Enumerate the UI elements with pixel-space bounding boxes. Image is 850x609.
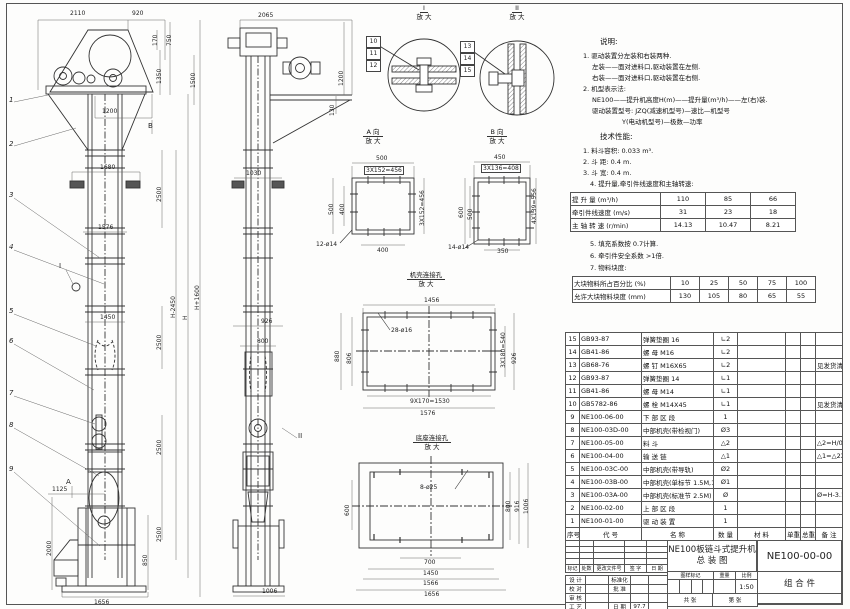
detail-i-sub: 放 大: [416, 13, 431, 21]
bom-row: 2NE100-02-00上 部 区 段1: [566, 502, 843, 515]
dim-label: 3X180=540: [500, 332, 507, 368]
note-line: NE100——提升机高度H(m)——提升量(m³/h)——左(右)装.: [592, 96, 768, 104]
revision-table: 标记处数更改文件号签 字日 期: [565, 540, 668, 573]
bom-row: 6NE100-04-00输 送 链△1△1=△2X4: [566, 450, 843, 463]
bom-row: 7NE100-05-00料 斗△2△2=H/0.2+5.75: [566, 437, 843, 450]
base-detail-title: 底座连接孔 放 大: [404, 434, 460, 451]
drawing-number: NE100-00-00: [767, 551, 833, 562]
part-callout: 5: [9, 307, 13, 315]
detail-i-title: I 放 大: [408, 4, 440, 21]
dim-label: 1125: [52, 486, 67, 493]
part-callout: 1: [9, 96, 13, 104]
bom-row: 5NE100-03C-00中部机壳(带导轨)Ø2: [566, 463, 843, 476]
dim-label: 500: [376, 155, 387, 162]
dim-label: 1200: [102, 108, 117, 115]
spec-item: 6. 牵引件安全系数 >1倍.: [590, 252, 664, 260]
part-callout: 9: [9, 465, 13, 473]
dim-label: H: [182, 315, 189, 320]
dim-label: 1006: [523, 499, 530, 514]
view-marker-a: A: [66, 478, 71, 486]
detail-ii-sub: 放 大: [509, 13, 524, 21]
dim-label: H+1600: [194, 285, 201, 310]
dim-label: 8-ø25: [420, 484, 437, 491]
view-a-label: A 向: [363, 128, 382, 137]
scale-value: 1:50: [736, 580, 758, 594]
dim-label: 806: [346, 353, 353, 364]
dim-label: 500: [467, 209, 474, 220]
dim-label: 1656: [424, 591, 439, 598]
drawing-title-line2: 总 装 图: [697, 556, 728, 566]
dim-label: 1450: [423, 570, 438, 577]
dim-label: 920: [132, 10, 143, 17]
detail-ii-title: II 放 大: [501, 4, 533, 21]
dim-label: 600: [458, 207, 465, 218]
dim-label: 2500: [156, 527, 163, 542]
dim-label: 1450: [100, 314, 115, 321]
dim-label: 130: [329, 105, 336, 116]
dim-label: 28-ø16: [391, 327, 412, 334]
dim-label: 400: [377, 247, 388, 254]
bom-row: 13GB68-76螺 钉 M16X65∟2见发货清单: [566, 359, 843, 372]
dim-label: 1456: [424, 297, 439, 304]
performance-table: 提 升 量 (m³/h)1108566 牵引件线速度 (m/s)312318 主…: [570, 192, 796, 232]
part-callout: 7: [9, 389, 13, 397]
front-elevation-view: [46, 30, 153, 592]
base-detail-label: 底座连接孔: [413, 434, 452, 443]
dim-label: 400: [339, 204, 346, 215]
detail-marker-ii: II: [298, 432, 302, 440]
bom-row: 11GB41-86螺 母 M14∟1: [566, 385, 843, 398]
part-callout: 4: [9, 243, 13, 251]
view-a-section: [340, 176, 416, 243]
scale-value-table: 1:50: [667, 579, 758, 594]
dim-label: 3X152=456: [419, 190, 426, 226]
view-marker-b: B: [148, 122, 153, 130]
dim-label: 3X152=456: [364, 166, 404, 175]
note-line: 右装——面对进料口,驱动装置在右侧.: [592, 74, 700, 82]
dim-label: 3X136=408: [481, 164, 521, 173]
dim-label: 1576: [98, 224, 113, 231]
signature-table: 设 计标准化 校 对批 准 审 核 工 艺日 期97.7: [565, 575, 668, 609]
detail-ii-label: II: [512, 4, 522, 13]
bom-row: 14GB41-86螺 母 M16∟2: [566, 346, 843, 359]
casing-holes-detail: [356, 306, 502, 397]
dim-label: 500: [328, 204, 335, 215]
bom-row: 10GB5782-86螺 栓 M14X45∟1见发货清单: [566, 398, 843, 411]
spec-item: 4. 提升量,牵引件线速度和主轴转速:: [590, 180, 694, 188]
dim-label: 2065: [258, 12, 273, 19]
casing-detail-title: 机壳连接孔 放 大: [398, 271, 454, 288]
dim-label: 450: [494, 154, 505, 161]
note-line: 2. 机型表示法:: [583, 85, 626, 93]
view-a-title: A 向 放 大: [356, 128, 390, 145]
bom-row: 8NE100-03D-00中部机壳(带检视门)Ø3: [566, 424, 843, 437]
casing-detail-sub: 放 大: [418, 280, 433, 288]
dim-label: 2500: [156, 440, 163, 455]
view-b-section: [465, 176, 534, 248]
bom-row: 1NE100-01-00驱 动 装 置1: [566, 515, 843, 528]
dim-label: 1576: [420, 410, 435, 417]
dim-label: 350: [497, 248, 508, 255]
dim-label: 9X170=1530: [410, 398, 450, 405]
spec-item: 5. 填充系数按 0.7计算.: [590, 240, 658, 248]
casing-detail-label: 机壳连接孔: [407, 271, 446, 280]
dim-label: 926: [511, 353, 518, 364]
dim-label: 2000: [46, 541, 53, 556]
part-callout: 2: [9, 140, 13, 148]
base-detail-sub: 放 大: [424, 443, 439, 451]
dim-label: 1656: [94, 599, 109, 606]
drawing-sheet: 2110 920 170 750 1350 1500 1200 1680 157…: [0, 0, 850, 609]
part-callout: 8: [9, 421, 13, 429]
part-callout-box: 13: [460, 41, 475, 53]
dim-label: 1030: [246, 170, 261, 177]
bom-row: 9NE100-06-00下 部 区 段1: [566, 411, 843, 424]
part-callout: 3: [9, 191, 13, 199]
dim-label: 916: [514, 501, 521, 512]
bom-table: 15GB93-87弹簧垫圈 16∟2 14GB41-86螺 母 M16∟2 13…: [565, 332, 843, 541]
lump-size-table: 大块物料所占百分比 (%)10255075100 允许大块物料块度 (mm)13…: [572, 276, 816, 303]
part-callout-box: 15: [460, 65, 475, 77]
drawing-title-line1: NE100板链斗式提升机: [668, 545, 755, 555]
part-callout: 6: [9, 337, 13, 345]
part-callout-box: 10: [366, 36, 381, 48]
dim-label: 1200: [338, 71, 345, 86]
dim-label: 1350: [156, 69, 163, 84]
dim-label: 600: [344, 505, 351, 516]
dim-label: 850: [142, 555, 149, 566]
dim-label: 1680: [100, 164, 115, 171]
bom-header-row: 序号代 号名 称数 量材 料单重总重备 注: [566, 528, 843, 541]
title-block-empty-cell: [757, 593, 842, 604]
view-b-label: B 向: [487, 128, 506, 137]
dim-label: 12-ø14: [316, 241, 337, 248]
bom-row: 15GB93-87弹簧垫圈 16∟2: [566, 333, 843, 346]
bom-row: 3NE100-03A-00中部机壳(标准节 2.5M)ØØ=H-3.15/2.5: [566, 489, 843, 502]
sheet-count-table: 共 张第 张: [667, 593, 758, 607]
dim-label: H-2450: [170, 296, 177, 318]
view-a-sub: 放 大: [365, 137, 380, 145]
detail-marker-i: I: [59, 262, 61, 270]
dim-label: 800: [257, 338, 268, 345]
note-line: Y(电动机型号)—极数—功率: [622, 118, 703, 126]
part-type: 组 合 件: [784, 577, 815, 589]
spec-item: 3. 斗 宽: 0.4 m.: [583, 169, 631, 177]
part-type-cell: 组 合 件: [757, 571, 842, 594]
bom-row: 12GB93-87弹簧垫圈 14∟1: [566, 372, 843, 385]
notes-heading: 说明:: [600, 38, 618, 46]
note-line: 1. 驱动装置分左装和右装两种.: [583, 52, 671, 60]
dim-label: 2500: [156, 187, 163, 202]
base-holes-detail: [352, 456, 512, 556]
specs-heading: 技术性能:: [600, 133, 633, 141]
view-b-sub: 放 大: [489, 137, 504, 145]
part-callout-box: 12: [366, 60, 381, 72]
dim-label: 2500: [156, 335, 163, 350]
drawing-title-cell: NE100板链斗式提升机 总 装 图: [667, 540, 757, 572]
spec-item: 2. 斗 距: 0.4 m.: [583, 158, 631, 166]
bom-row: 4NE100-03B-00中部机壳(单标节 1.5M,1M)Ø1: [566, 476, 843, 489]
note-line: 左装——面对进料口,驱动装置在左侧.: [592, 63, 700, 71]
dim-label: 1566: [423, 580, 438, 587]
spec-item: 1. 料斗容积: 0.033 m³.: [583, 147, 653, 155]
part-callout-box: 11: [366, 48, 381, 60]
note-line: 驱动装置型号: JZQ(减速机型号)—速比—机型号: [592, 107, 730, 115]
dim-label: 2110: [70, 10, 85, 17]
dim-label: 1500: [190, 73, 197, 88]
dim-label: 880: [334, 351, 341, 362]
view-b-title: B 向 放 大: [480, 128, 514, 145]
dim-label: 750: [166, 35, 173, 46]
dim-label: 700: [424, 559, 435, 566]
dim-label: 170: [152, 35, 159, 46]
detail-i-label: I: [420, 4, 428, 13]
dim-label: 14-ø14: [448, 244, 469, 251]
dim-label: 4X139=556: [531, 188, 538, 224]
dim-label: 926: [261, 318, 272, 325]
dim-label: 800: [505, 501, 512, 512]
dim-label: 1006: [262, 588, 277, 595]
detail-i-view: [381, 39, 460, 111]
spec-item: 7. 物料块度:: [590, 264, 626, 272]
part-callout-box: 14: [460, 53, 475, 65]
drawing-number-cell: NE100-00-00: [757, 540, 842, 572]
detail-ii-view: [474, 41, 554, 115]
